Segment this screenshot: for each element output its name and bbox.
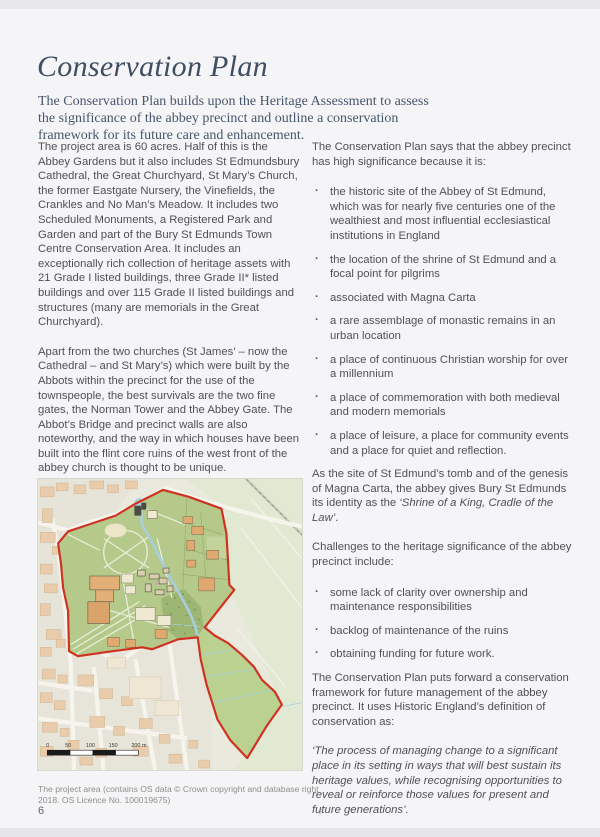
list-item: a place of commemoration with both medie…: [312, 391, 575, 420]
framework-paragraph: The Conservation Plan puts forward a con…: [312, 671, 575, 729]
list-item: obtaining funding for future work.: [312, 647, 575, 662]
page-number: 6: [38, 805, 44, 817]
list-item: some lack of clarity over ownership and …: [312, 586, 575, 615]
scale-label: 0: [46, 743, 49, 749]
map-svg: 0 50 100 150 200 m: [38, 479, 302, 770]
significance-intro: The Conservation Plan says that the abbe…: [312, 140, 575, 169]
scale-label: 150: [109, 743, 118, 749]
page-title: Conservation Plan: [37, 50, 457, 84]
right-column: The Conservation Plan says that the abbe…: [312, 140, 575, 832]
significance-bullet-list: the historic site of the Abbey of St Edm…: [312, 185, 575, 458]
challenges-bullet-list: some lack of clarity over ownership and …: [312, 586, 575, 662]
project-area-map: 0 50 100 150 200 m: [37, 478, 303, 771]
identity-suffix: .: [335, 512, 338, 524]
left-column: The project area is 60 acres. Half of th…: [38, 140, 302, 491]
oval-lawn: [105, 524, 127, 538]
list-item: associated with Magna Carta: [312, 291, 575, 306]
list-item: a place of leisure, a place for communit…: [312, 429, 575, 458]
identity-paragraph: As the site of St Edmund’s tomb and of t…: [312, 467, 575, 525]
list-item: a place of continuous Christian worship …: [312, 353, 575, 382]
scale-label: 100: [86, 743, 95, 749]
map-caption: The project area (contains OS data © Cro…: [38, 784, 328, 806]
scan-edge-top: [0, 0, 600, 9]
scale-label: 50: [65, 743, 71, 749]
scale-label: 200 m: [131, 743, 147, 749]
body-paragraph: The project area is 60 acres. Half of th…: [38, 140, 302, 330]
list-item: a rare assemblage of monastic remains in…: [312, 314, 575, 343]
list-item: the historic site of the Abbey of St Edm…: [312, 185, 575, 243]
intro-paragraph: The Conservation Plan builds upon the He…: [38, 94, 443, 144]
challenges-intro: Challenges to the heritage significance …: [312, 540, 575, 569]
list-item: the location of the shrine of St Edmund …: [312, 253, 575, 282]
body-paragraph: Apart from the two churches (St James’ –…: [38, 345, 302, 476]
list-item: backlog of maintenance of the ruins: [312, 624, 575, 639]
conservation-definition-quote: ‘The process of managing change to a sig…: [312, 744, 575, 817]
